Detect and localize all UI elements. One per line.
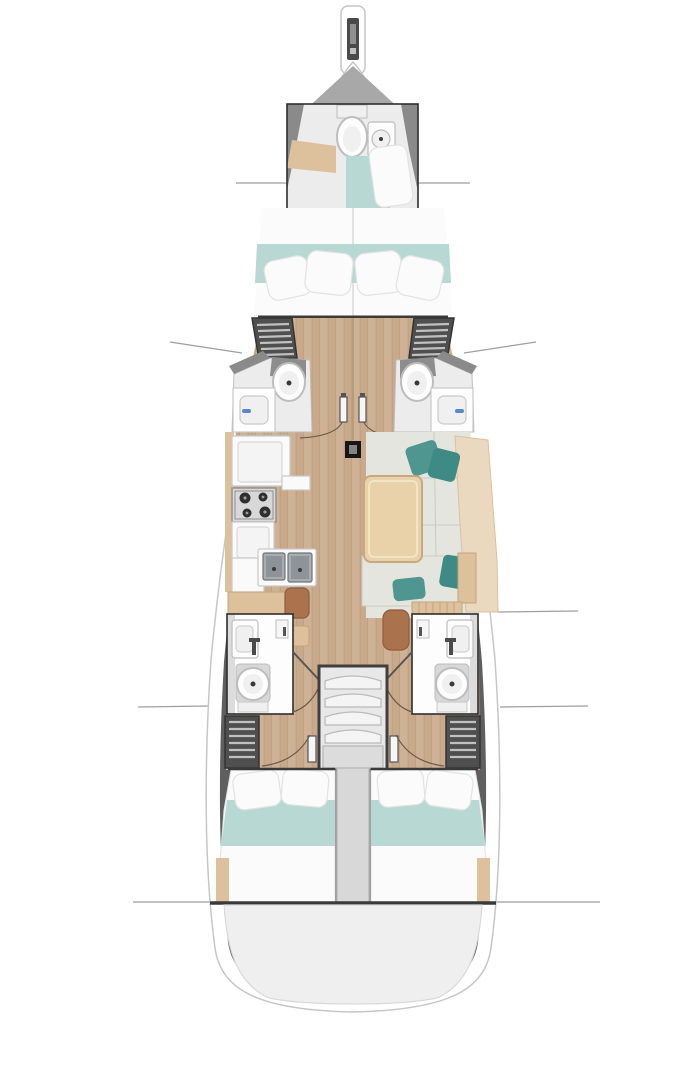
section-line-aft-right xyxy=(500,706,588,707)
door-leaf xyxy=(359,397,366,422)
sink-drain xyxy=(379,137,383,141)
stove xyxy=(232,488,276,522)
anchor-roller xyxy=(350,24,356,44)
galley-sink-basin xyxy=(291,556,309,579)
sink-drain xyxy=(272,567,276,571)
head-shelf xyxy=(437,702,467,712)
mast-post xyxy=(345,441,361,458)
pillow xyxy=(281,768,330,808)
door-hinge xyxy=(341,393,346,397)
galley-sink-basin xyxy=(266,556,282,577)
port-mid-head xyxy=(229,351,312,432)
pillow xyxy=(377,768,426,808)
burner-cap xyxy=(262,496,265,499)
sink-drain xyxy=(298,568,302,572)
stair-tread xyxy=(325,694,381,707)
chair xyxy=(383,610,409,650)
pillow xyxy=(304,250,354,297)
transom-platform xyxy=(224,905,482,1004)
teal-pillow xyxy=(392,576,426,601)
salon-table xyxy=(364,476,422,562)
mast-core xyxy=(349,445,357,454)
pillow xyxy=(368,144,414,209)
pillow xyxy=(424,769,475,811)
door-hinge xyxy=(360,393,365,397)
bed-wood-trim xyxy=(216,858,229,902)
aft-cabin-divider xyxy=(337,768,369,904)
anchor-roller-pin xyxy=(350,48,356,54)
bow-head xyxy=(287,104,418,210)
starboard-aft-cabin xyxy=(371,768,490,902)
bench-wood-end xyxy=(458,553,476,603)
soap-tray xyxy=(455,409,464,413)
stair-tread xyxy=(325,730,381,743)
toilet-seat xyxy=(343,126,361,152)
section-line-mid-left xyxy=(170,342,242,353)
shower-door xyxy=(417,620,429,638)
bed-wood-trim xyxy=(477,858,490,902)
toilet-drain xyxy=(287,381,292,386)
shower-mixer-handle xyxy=(449,642,453,655)
yacht-floor-plan-canvas xyxy=(0,0,682,1080)
burner-cap xyxy=(263,510,266,513)
galley-counter-step xyxy=(282,476,310,490)
desk-wood xyxy=(228,592,286,616)
pillow xyxy=(232,769,283,811)
port-aft-cabin xyxy=(216,768,335,902)
shower-mixer xyxy=(445,638,456,642)
shower-door-handle xyxy=(419,627,422,636)
section-line-aft-left xyxy=(138,706,208,707)
shower-door xyxy=(276,620,288,638)
starboard-mid-head xyxy=(394,351,477,432)
door-leaf xyxy=(308,736,316,762)
stair-tread xyxy=(325,712,381,725)
counter-door xyxy=(238,442,282,482)
head-shelf xyxy=(238,702,268,712)
shower-mixer xyxy=(249,638,260,642)
door-leaf xyxy=(390,736,398,762)
shower-mixer-handle xyxy=(252,642,256,655)
section-line-salon-right xyxy=(497,611,578,612)
soap-tray xyxy=(242,409,251,413)
pillow xyxy=(394,254,445,302)
section-line-mid-right xyxy=(464,342,536,353)
v-berth-cabin xyxy=(254,208,452,317)
companionway-stairs xyxy=(319,666,387,770)
shower-door-handle xyxy=(283,627,286,636)
door-leaf xyxy=(340,397,347,422)
toilet-drain xyxy=(251,682,256,687)
toilet-drain xyxy=(415,381,420,386)
burner-cap xyxy=(246,512,249,515)
stair-tread xyxy=(325,676,381,689)
stairs-landing xyxy=(323,746,383,768)
toilet-drain xyxy=(450,682,455,687)
yacht-floor-plan xyxy=(0,0,682,1080)
burner-cap xyxy=(243,496,246,499)
